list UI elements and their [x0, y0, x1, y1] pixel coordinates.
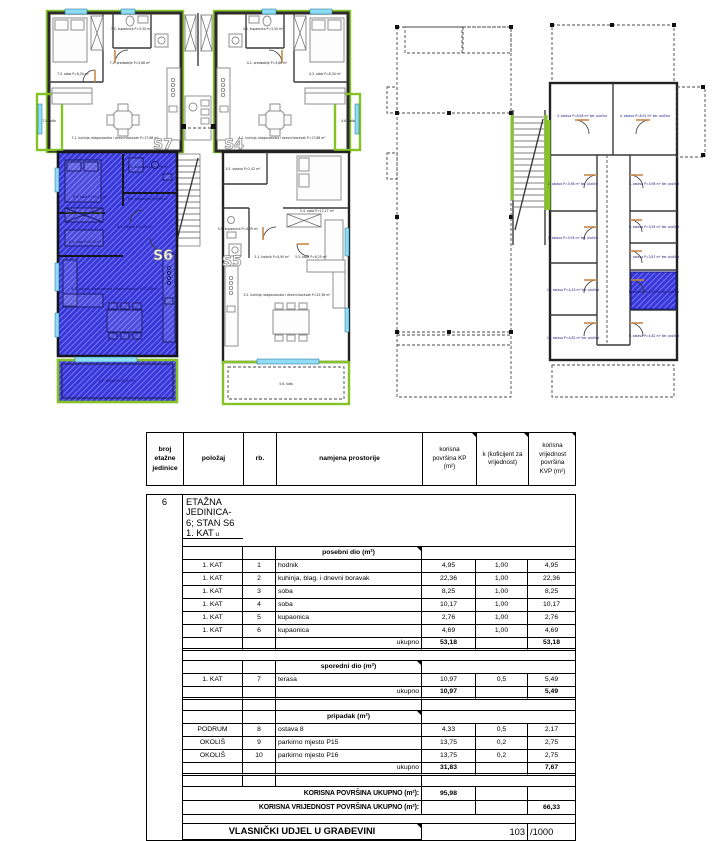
room-label: 4.1. kuhinja, blagovaonica i dnevni bora… [238, 136, 326, 140]
unit-label-s7: S7 [153, 137, 173, 153]
window-strip [65, 9, 87, 14]
room-label: 1. ostava P=3,94 m² ker. pločice [548, 236, 598, 240]
room-label: 11. ostava P=4,33 m² ker. pločice [547, 288, 599, 292]
total-kp: 31,83 [422, 763, 476, 776]
ownership-share-value: 103 [422, 824, 528, 840]
table-cell [243, 687, 276, 700]
cell-polozaj: PODRUM [183, 724, 243, 737]
total-kp: 53,18 [422, 638, 476, 651]
cell-polozaj: OKOLIŠ [183, 750, 243, 763]
sink [227, 232, 236, 238]
section-title: pripadak (m²) [276, 711, 422, 724]
room-label: 9. ostava P=4,82 m² ker. pločice [629, 334, 679, 338]
unit-title-cell: ETAŽNA JEDINICA- 6; STAN S6 1. KAT u eta… [183, 495, 243, 539]
kitchen [167, 68, 180, 140]
ukupno-label: ukupno [276, 638, 422, 651]
left-floor-plan: 7.3. soba P=8,34 m² 7.4. kupaonica P=3,3… [35, 8, 362, 412]
cell-kp: 10,17 [422, 599, 476, 612]
cell-rb: 5 [243, 612, 276, 625]
room-label: 7.2. predsoblje P=3,88 m² [110, 61, 151, 65]
cell-kvp: 8,25 [528, 586, 575, 599]
cell-kp: 8,25 [422, 586, 476, 599]
sofa [52, 88, 92, 104]
table-cell [476, 638, 528, 651]
cell-namjena: kuhinja, blag. i dnevni boravak [276, 573, 422, 586]
unit-title: ETAŽNA JEDINICA- 6; STAN S6 1. KAT [186, 497, 234, 538]
cell-k: 1,00 [476, 612, 528, 625]
cell-rb: 4 [243, 599, 276, 612]
cell-kp: 4,33 [422, 724, 476, 737]
note-marker [472, 433, 476, 437]
summary-row-kvp: KORISNA VRIJEDNOST POVRŠINA UKUPNO (m²):… [183, 801, 575, 815]
room-label: 8. ostava P=4,33 m² ker. pločice [629, 290, 679, 294]
table-cell [276, 776, 422, 787]
cell-k: 1,00 [476, 573, 528, 586]
cell-polozaj: 1. KAT [183, 560, 243, 573]
cell-polozaj: 1. KAT [183, 586, 243, 599]
room-label: 4.3. soba P=8,34 m² [309, 72, 342, 76]
total-kvp: 5,49 [528, 687, 575, 700]
dining-table [107, 104, 139, 136]
cell-k: 1,00 [476, 625, 528, 638]
header-broj-etazne-jedinice: broj etažne jedinice [147, 433, 184, 485]
room-label: 5.3. soba P=8,25 m² [295, 255, 328, 259]
cell-namjena: hodnik [276, 560, 422, 573]
cell-k: 1,00 [476, 586, 528, 599]
cell-k: 0,5 [476, 674, 528, 687]
ownership-share-label: VLASNIČKI UDJEL U GRAĐEVINI [183, 824, 422, 840]
note-marker [417, 711, 421, 715]
summary-kp-label: KORISNA POVRŠINA UKUPNO (m²): [183, 787, 422, 801]
wardrobe [287, 214, 321, 227]
open-terrace [552, 365, 674, 397]
room-label: 3. ostava P=8,58 m² ker. pločice [557, 114, 607, 118]
room-label: 7.5. lođa [42, 119, 56, 123]
unit-s5: 4.5. ostava P=2,02 m² 5.4. soba P=12,17 … [218, 152, 349, 404]
cell-polozaj: 1. KAT [183, 674, 243, 687]
room-label: 6.6. kupaonica P=4,69 m² [128, 197, 169, 201]
total-kp: 10,97 [422, 687, 476, 700]
room-label: 4.6. lođa [341, 119, 355, 123]
room-label: 4.5. ostava P=2,02 m² [226, 167, 262, 171]
bed [325, 220, 343, 262]
table-cell [476, 687, 528, 700]
section-header-row: posebni dio (m²) [183, 547, 575, 560]
total-row: ukupno 53,18 53,18 [183, 638, 575, 651]
table-cell [243, 661, 276, 674]
cell-namjena: ostava 8 [276, 724, 422, 737]
total-row: ukupno 31,83 7,67 [183, 763, 575, 776]
table-cell [183, 638, 243, 651]
cell-polozaj: OKOLIŠ [183, 737, 243, 750]
cell-kp: 4,69 [422, 625, 476, 638]
table-row: 1. KAT 2 kuhinja, blag. i dnevni boravak… [183, 573, 575, 586]
cell-polozaj: 1. KAT [183, 573, 243, 586]
sofa [305, 88, 345, 104]
section-header-row: pripadak (m²) [183, 711, 575, 724]
cell-namjena: kupaonica [276, 612, 422, 625]
cell-rb: 6 [243, 625, 276, 638]
total-row: ukupno 10,97 5,49 [183, 687, 575, 700]
table-cell [243, 700, 276, 711]
note-marker [572, 433, 576, 437]
room-label: 6.7. terasa P=10,97 m² [99, 379, 136, 383]
cell-namjena: parkirno mjesto P15 [276, 737, 422, 750]
table-row: OKOLIŠ 9 parkirno mjesto P15 13,75 0,2 2… [183, 737, 575, 750]
window-strip [75, 357, 137, 362]
room-label: 6. ostava P=3,94 m² ker. pločice [629, 225, 679, 229]
room-label: 6.5. kupaonica P=2,76 m² [128, 165, 169, 169]
sink [138, 16, 148, 23]
spacer-row [183, 651, 575, 661]
room-label: 5.5. kupaonica P=4,09 m² [218, 227, 259, 231]
room-label: 4.4. kupaonica P=3,34 m² [243, 27, 284, 31]
washer [229, 34, 242, 47]
cell-namjena: soba [276, 586, 422, 599]
table-cell [183, 776, 243, 787]
window-strip [121, 9, 135, 14]
section-header-row: sporedni dio (m²) [183, 661, 575, 674]
header-rb: rb. [244, 433, 277, 485]
wardrobe [294, 16, 306, 50]
table-cell [476, 787, 528, 801]
cell-rb: 8 [243, 724, 276, 737]
table-cell [243, 711, 276, 724]
dining-table [273, 303, 309, 341]
area-table-header: broj etažne jedinice položaj rb. namjena… [146, 432, 576, 486]
table-cell [183, 687, 243, 700]
total-kvp: 53,18 [528, 638, 575, 651]
ukupno-label: ukupno [276, 763, 422, 776]
summary-kvp-value: 66,33 [528, 801, 575, 815]
table-cell [243, 776, 276, 787]
table-row: 1. KAT 6 kupaonica 4,69 1,00 4,69 [183, 625, 575, 638]
room-label: 6.2. kuhinja, blagovaonica i dnevni bora… [71, 287, 159, 291]
header-korisna-vrijednost: korisna vrijednost površina KVP (m²) [529, 433, 576, 485]
table-cell [183, 700, 243, 711]
table-row: OKOLIŠ 10 parkirno mjesto P16 13,75 0,2 … [183, 750, 575, 763]
unit-number: 6 [162, 497, 167, 507]
room-label: 4. ostava P=8,91 m² ker. pločice [620, 114, 670, 118]
cell-kvp: 4,69 [528, 625, 575, 638]
ownership-share-denominator: /1000 [528, 824, 575, 840]
table-row: 1. KAT 3 soba 8,25 1,00 8,25 [183, 586, 575, 599]
cell-kp: 4,95 [422, 560, 476, 573]
kitchen [163, 254, 175, 342]
summary-kvp-label: KORISNA VRIJEDNOST POVRŠINA UKUPNO (m²): [183, 801, 422, 815]
total-kvp: 7,67 [528, 763, 575, 776]
cell-kvp: 22,36 [528, 573, 575, 586]
unit-number-cell: 6 [147, 495, 183, 840]
summary-row-kp: KORISNA POVRŠINA UKUPNO (m²): 95,98 [183, 787, 575, 801]
cell-rb: 3 [243, 586, 276, 599]
ukupno-label: ukupno [276, 687, 422, 700]
unit-s7: 7.3. soba P=8,34 m² 7.4. kupaonica P=3,3… [37, 9, 183, 153]
ownership-share-row: VLASNIČKI UDJEL U GRAĐEVINI 103 /1000 [183, 824, 575, 840]
room-label: 6.1. hodnik P=4,95 m² [118, 225, 154, 229]
cell-rb: 1 [243, 560, 276, 573]
left-wing-outline [387, 25, 513, 397]
summary-kp-value: 95,98 [422, 787, 476, 801]
cell-kvp: 5,49 [528, 674, 575, 687]
note-marker [417, 661, 421, 665]
cell-k: 0,2 [476, 737, 528, 750]
unit-label-s5: S5 [222, 254, 242, 270]
table-cell [183, 547, 243, 560]
table-row: 1. KAT 1 hodnik 4,95 1,00 4,95 [183, 560, 575, 573]
section-title: posebni dio (m²) [276, 547, 422, 560]
cell-rb: 2 [243, 573, 276, 586]
table-cell [243, 763, 276, 776]
dining-table [107, 303, 142, 339]
room-label: 5.2. kuhinja, blagovaonica i dnevni bora… [243, 293, 331, 297]
cell-k: 0,5 [476, 724, 528, 737]
table-row: PODRUM 8 ostava 8 4,33 0,5 2,17 [183, 724, 575, 737]
cell-rb: 10 [243, 750, 276, 763]
spacer-row [183, 539, 575, 547]
cell-kp: 13,75 [422, 737, 476, 750]
cell-namjena: terasa [276, 674, 422, 687]
table-cell [528, 787, 575, 801]
cell-kvp: 2,17 [528, 724, 575, 737]
kitchen [225, 266, 238, 346]
cell-kp: 22,36 [422, 573, 476, 586]
room-label: 7. ostava P=3,87 m² ker. pločice [629, 255, 679, 259]
room-label: 5. ostava P=3,98 m² ker. pločice [629, 182, 679, 186]
room-label: 2. ostava P=3,98 m² ker. pločice [548, 182, 598, 186]
table-cell [476, 801, 528, 815]
toilet [263, 16, 271, 26]
etazna-jedinica-table: 6 ETAŽNA JEDINICA- 6; STAN S6 1. KAT u e… [146, 494, 576, 841]
cell-polozaj: 1. KAT [183, 599, 243, 612]
room-label: 7.3. soba P=8,34 m² [57, 72, 90, 76]
window-strip [257, 359, 319, 364]
table-cell [422, 661, 575, 674]
window-strip [355, 104, 359, 134]
header-koeficijent: k (koficijent za vrijednost) [477, 433, 529, 485]
cell-kp: 10,97 [422, 674, 476, 687]
table-cell [183, 711, 243, 724]
dining-table [259, 104, 291, 136]
room-label: 5.4. soba P=12,17 m² [300, 209, 335, 213]
table-cell [243, 638, 276, 651]
cell-k: 0,2 [476, 750, 528, 763]
unit-s4: 4.3. soba P=8,34 m² 4.4. kupaonica P=3,3… [214, 9, 360, 153]
cell-kvp: 2,75 [528, 750, 575, 763]
toilet [126, 16, 134, 26]
room-label: 7.1. kuhinja, blagovaonica i dnevni bora… [71, 136, 159, 140]
table-cell [422, 776, 575, 787]
spacer-row [183, 776, 575, 787]
window-strip [55, 168, 59, 192]
sink [163, 174, 172, 180]
stairwell [512, 110, 546, 245]
unit-label-s6: S6 [153, 248, 173, 264]
cell-namjena: parkirno mjesto P16 [276, 750, 422, 763]
stairs [175, 154, 200, 246]
cell-k: 1,00 [476, 599, 528, 612]
spacer-row [183, 815, 575, 824]
cell-k: 1,00 [476, 560, 528, 573]
window-strip [310, 9, 332, 14]
spacer-row [183, 700, 575, 711]
cell-rb: 9 [243, 737, 276, 750]
cell-rb: 7 [243, 674, 276, 687]
unit-label-s4: S4 [224, 137, 244, 153]
header-korisna-povrsina: korisna površina KP (m²) [423, 433, 477, 485]
wardrobe [91, 16, 103, 50]
room-label: 5.6. lođa [279, 382, 293, 386]
table-cell [422, 700, 575, 711]
table-cell [422, 801, 476, 815]
cell-namjena: soba [276, 599, 422, 612]
cell-polozaj: 1. KAT [183, 612, 243, 625]
cell-kvp: 2,75 [528, 737, 575, 750]
table-cell [183, 763, 243, 776]
header-namjena-prostorije: namjena prostorije [277, 433, 423, 485]
room-label: 5.1. hodnik P=4,90 m² [255, 255, 291, 259]
cell-kvp: 2,76 [528, 612, 575, 625]
note-marker [417, 547, 421, 551]
sink [249, 16, 259, 23]
cell-kp: 13,75 [422, 750, 476, 763]
cell-polozaj: 1. KAT [183, 625, 243, 638]
cell-kp: 2,76 [422, 612, 476, 625]
window-strip [55, 313, 59, 337]
table-cell [422, 711, 575, 724]
table-row: 1. KAT 7 terasa 10,97 0,5 5,49 [183, 674, 575, 687]
room-label: 10. ostava P=4,82 m² ker. pločice [547, 336, 599, 340]
room-label: 7.4. kupaonica P=3,34 m² [111, 27, 152, 31]
unit-s6-highlighted: 6.4. soba P=10,17 m² 6.3. soba P=8,25 m²… [55, 152, 177, 402]
room-label: 6.4. soba P=10,17 m² [73, 195, 108, 199]
note-marker [417, 824, 421, 828]
window-strip [345, 228, 349, 256]
table-row: 1. KAT 4 soba 10,17 1,00 10,17 [183, 599, 575, 612]
table-cell [276, 700, 422, 711]
open-terrace [397, 335, 511, 397]
cell-kvp: 4,95 [528, 560, 575, 573]
table-cell [422, 547, 575, 560]
table-cell [243, 547, 276, 560]
table-cell [476, 763, 528, 776]
washer [155, 34, 168, 47]
window-strip [55, 263, 59, 291]
table-cell [183, 661, 243, 674]
section-title: sporedni dio (m²) [276, 661, 422, 674]
kitchen [217, 68, 230, 140]
cell-kvp: 10,17 [528, 599, 575, 612]
storage-block: 3. ostava P=8,58 m² ker. pločice 4. osta… [547, 23, 705, 397]
right-floor-plan: 3. ostava P=8,58 m² ker. pločice 4. osta… [385, 15, 712, 410]
room-label: 6.3. soba P=8,25 m² [69, 240, 102, 244]
room-label: 4.2. predsoblje P=3,88 m² [247, 61, 288, 65]
note-marker [524, 433, 528, 437]
window-strip [345, 308, 349, 332]
cell-namjena: kupaonica [276, 625, 422, 638]
header-polozaj: položaj [184, 433, 244, 485]
table-row: 1. KAT 5 kupaonica 2,76 1,00 2,76 [183, 612, 575, 625]
window-strip [262, 9, 276, 14]
toilet [228, 217, 235, 224]
